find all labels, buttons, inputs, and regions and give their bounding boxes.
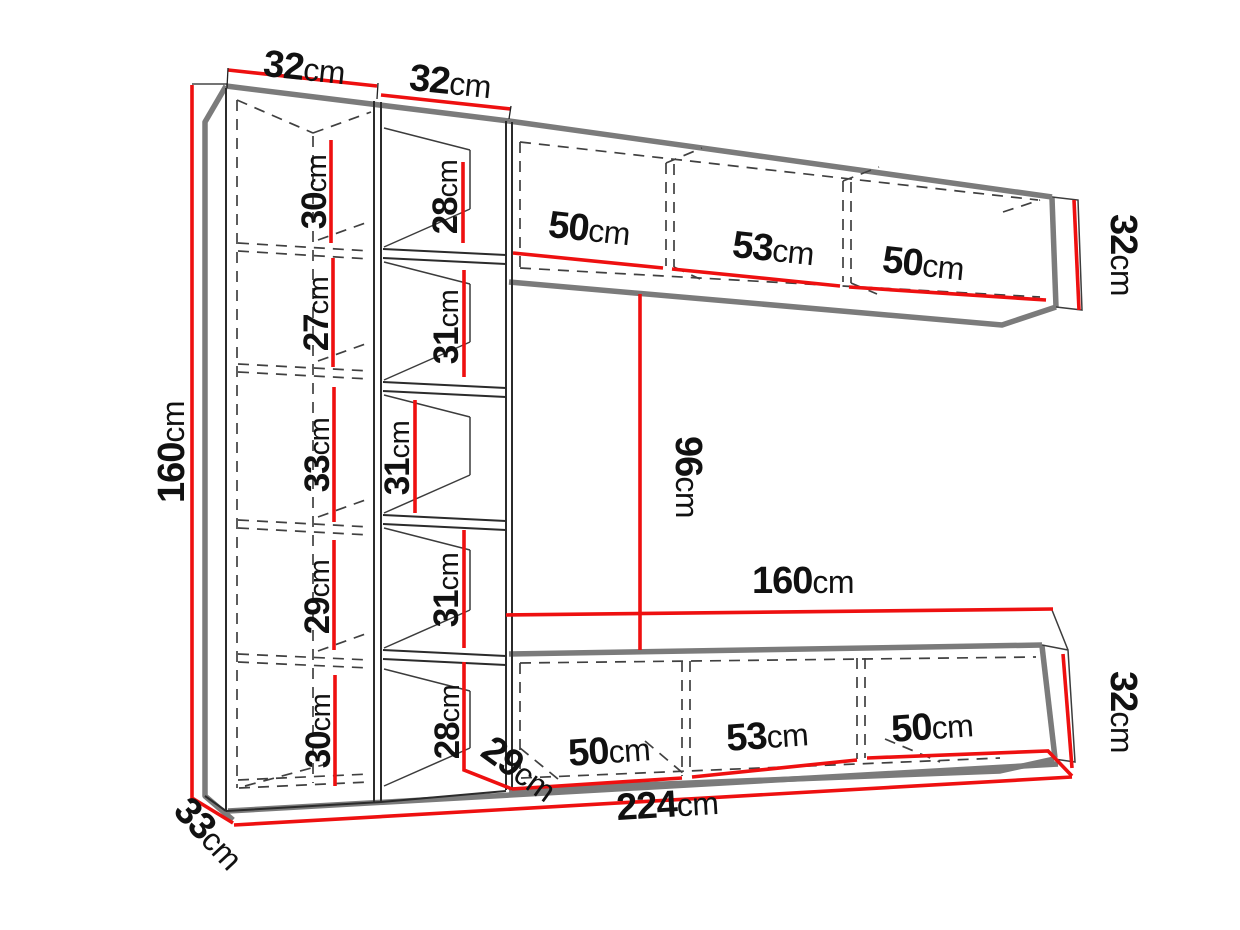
col-a-shelf-1-hidden: [238, 243, 370, 259]
dim-label-col-b-s5: 28cm: [428, 685, 467, 760]
col-a-shelf-3-hidden: [238, 520, 370, 535]
dim-line-bottom-width: [506, 609, 1053, 615]
dim-label-top-shelf-s2: 53cm: [730, 224, 816, 274]
dim-label-col-a-width: 32cm: [261, 43, 347, 93]
top-shelf-bottom-edge: [509, 282, 1056, 325]
dim-line-top-shelf-s1: [513, 253, 663, 268]
dim-label-col-a-s3: 33cm: [298, 418, 337, 493]
bottom-cabinet-top-edge: [509, 645, 1042, 654]
dim-label-bottom-height: 32cm: [1102, 671, 1144, 753]
col-a-shelf-2-hidden: [238, 364, 370, 379]
top-shelf-end-inner-edge: [1052, 198, 1056, 307]
dim-label-total-width: 224cm: [615, 781, 719, 829]
bottom-cabinet-hidden-dividers: [682, 658, 865, 776]
dim-label-col-b-s1: 28cm: [426, 160, 465, 235]
dim-label-unit-height: 160cm: [151, 401, 193, 503]
furniture-dimension-diagram: 32cm 32cm 160cm 30cm 27cm 33cm 29cm 30cm…: [0, 0, 1240, 930]
dim-label-middle-gap: 96cm: [667, 436, 709, 518]
dim-label-bottom-s2: 53cm: [725, 712, 810, 760]
dim-label-top-shelf-s1: 50cm: [546, 204, 632, 254]
tick-top-mid: [377, 83, 378, 99]
dim-label-bottom-width: 160cm: [752, 560, 854, 602]
dim-label-top-shelf-s3: 50cm: [880, 239, 966, 289]
col-b-shelf-3: [383, 515, 506, 530]
dim-label-col-b-width: 32cm: [407, 57, 493, 107]
col-b-shelf-1: [383, 249, 506, 264]
col-b-shelf-2: [383, 382, 506, 397]
col-b-shelf-4: [383, 650, 506, 665]
col-a-back-top: [237, 100, 371, 133]
dim-label-col-a-s2: 27cm: [297, 277, 336, 352]
dim-label-col-a-s5: 30cm: [299, 694, 338, 769]
dim-label-col-b-s3: 31cm: [378, 421, 417, 496]
col-a-shelf-4-hidden: [238, 654, 370, 668]
dim-label-col-b-s2: 31cm: [427, 290, 466, 365]
dim-label-bottom-s1: 50cm: [567, 727, 652, 775]
structure-depth-lines: [384, 128, 1082, 786]
dim-label-col-a-s4: 29cm: [298, 560, 337, 635]
col-divider-edges: [374, 101, 381, 802]
bottom-cabinet-end-inner-edge: [1042, 646, 1055, 758]
dim-label-col-a-s1: 30cm: [295, 155, 334, 230]
dim-label-top-shelf-height: 32cm: [1102, 214, 1144, 296]
dim-line-bottom-height: [1063, 654, 1072, 768]
col-b-right-edges: [506, 121, 512, 790]
dim-label-left-depth: 33cm: [165, 790, 252, 879]
dim-label-bottom-s3: 50cm: [890, 703, 975, 751]
dim-label-col-b-s4: 31cm: [427, 553, 466, 628]
top-shelf-top-edge: [509, 121, 1052, 197]
diagram-canvas: 32cm 32cm 160cm 30cm 27cm 33cm 29cm 30cm…: [0, 0, 1240, 930]
bookcase-left-side: [205, 86, 233, 820]
dim-line-top-shelf-s3: [849, 287, 1046, 300]
